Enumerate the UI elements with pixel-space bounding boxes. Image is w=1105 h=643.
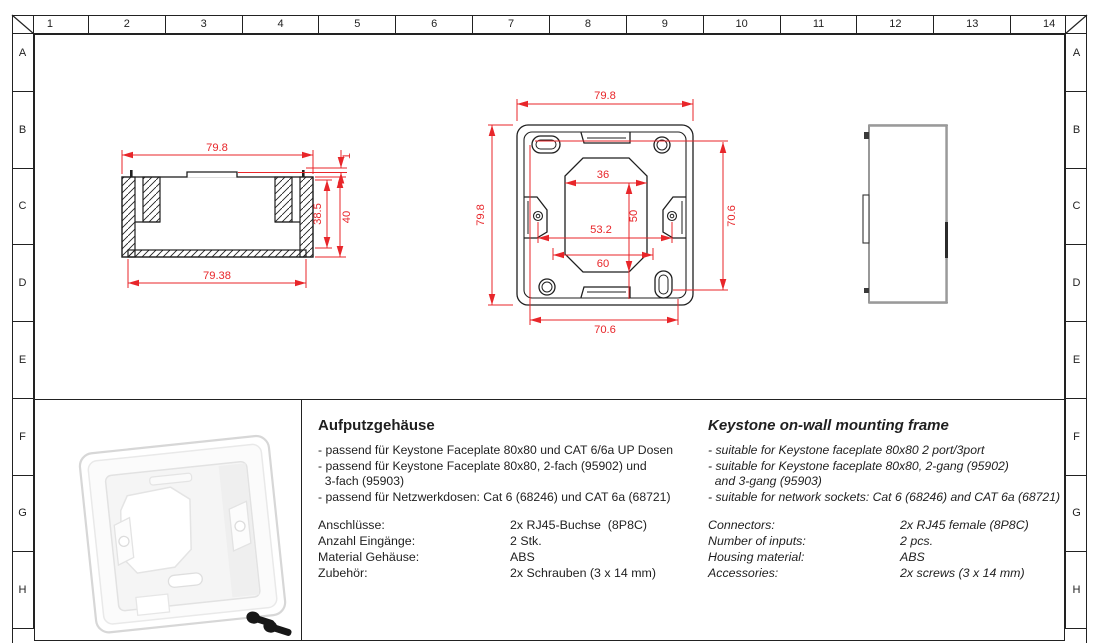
tab-top	[864, 132, 869, 139]
product-title-de: Aufputzgehäuse	[318, 417, 696, 434]
spec-row: Anzahl Eingänge:2 Stk.	[318, 533, 696, 549]
right-pin	[302, 170, 305, 178]
screw-mount-right	[663, 197, 686, 238]
spec-row: Connectors:2x RJ45 female (8P8C)	[708, 517, 1070, 533]
grid-row-label: E	[1065, 322, 1087, 399]
grid-row-label: B	[1065, 92, 1087, 169]
feature-item: - suitable for Keystone faceplate 80x80,…	[708, 459, 1070, 475]
photo-text-divider	[301, 399, 302, 641]
dimension-label: 1	[341, 153, 353, 159]
left-pin	[130, 170, 133, 178]
spec-label: Number of inputs:	[708, 533, 900, 549]
tab-middle	[863, 195, 869, 243]
grid-row-label: B	[12, 92, 34, 169]
spec-table-de: Anschlüsse:2x RJ45-Buchse (8P8C) Anzahl …	[318, 517, 696, 581]
feature-item: 3-fach (95903)	[318, 474, 696, 490]
tab-bottom	[864, 288, 869, 293]
grid-row-label: D	[12, 245, 34, 322]
spec-row: Housing material:ABS	[708, 549, 1070, 565]
side-view-body	[122, 170, 313, 257]
spec-label: Anzahl Eingänge:	[318, 533, 510, 549]
photo-bottom-cutout	[136, 594, 170, 615]
spec-table-en: Connectors:2x RJ45 female (8P8C) Number …	[708, 517, 1070, 581]
dimension-label: 40	[341, 211, 353, 223]
hole-bottom-left	[539, 279, 555, 295]
product-photo	[35, 400, 300, 641]
feature-list-de: - passend für Keystone Faceplate 80x80 u…	[318, 443, 696, 505]
spec-value: 2 Stk.	[510, 533, 542, 549]
spec-label: Connectors:	[708, 517, 900, 533]
grid-row-label: F	[12, 399, 34, 476]
screw-mount-left	[524, 197, 547, 238]
dimension-label: 36	[597, 169, 609, 181]
front-view-body	[517, 125, 693, 305]
dimension-label: 70.6	[726, 205, 738, 227]
spec-row: Material Gehäuse:ABS	[318, 549, 696, 565]
profile-view	[855, 115, 965, 310]
spec-label: Accessories:	[708, 565, 900, 581]
dimension-label: 70.6	[594, 324, 616, 336]
feature-item: - passend für Keystone Faceplate 80x80, …	[318, 459, 696, 475]
spec-value: 2x RJ45-Buchse (8P8C)	[510, 517, 647, 533]
dimension-label: 79.8	[475, 204, 487, 226]
spec-label: Housing material:	[708, 549, 900, 565]
grid-row-label: C	[1065, 169, 1087, 246]
info-block-german: Aufputzgehäuse - passend für Keystone Fa…	[318, 417, 696, 581]
grid-row-label: D	[1065, 245, 1087, 322]
dimension-label: 60	[597, 258, 609, 270]
spec-row: Zubehör:2x Schrauben (3 x 14 mm)	[318, 565, 696, 581]
hole-top-right	[654, 137, 670, 153]
top-tab	[187, 172, 237, 178]
spec-label: Material Gehäuse:	[318, 549, 510, 565]
grid-row-label: H	[12, 552, 34, 629]
dimension-label: 50	[628, 210, 640, 222]
dimension-label: 79.8	[206, 142, 228, 154]
grid-row-label: E	[12, 322, 34, 399]
dimension-label: 53.2	[590, 224, 612, 236]
dimension-label: 38.5	[312, 203, 324, 225]
grid-row-label: G	[12, 476, 34, 553]
spec-row: Number of inputs:2 pcs.	[708, 533, 1070, 549]
dimension-label: 79.8	[594, 90, 616, 102]
feature-item: - passend für Keystone Faceplate 80x80 u…	[318, 443, 696, 459]
feature-item: - passend für Netzwerkdosen: Cat 6 (6824…	[318, 490, 696, 506]
spec-value: 2x RJ45 female (8P8C)	[900, 517, 1029, 533]
feature-item: - suitable for Keystone faceplate 80x80 …	[708, 443, 1070, 459]
spec-value: 2x Schrauben (3 x 14 mm)	[510, 565, 656, 581]
product-title-en: Keystone on-wall mounting frame	[708, 417, 1070, 434]
dimension-label: 79.38	[203, 270, 231, 282]
side-section-view: 79.8 1 38.5 40 79.38	[100, 138, 370, 298]
spec-value: 2x screws (3 x 14 mm)	[900, 565, 1025, 581]
spec-row: Accessories:2x screws (3 x 14 mm)	[708, 565, 1070, 581]
info-block-english: Keystone on-wall mounting frame - suitab…	[708, 417, 1070, 581]
ruler-left: A B C D E F G H	[12, 15, 34, 629]
spec-value: ABS	[510, 549, 535, 565]
feature-item: and 3-gang (95903)	[708, 474, 1070, 490]
feature-item: - suitable for network sockets: Cat 6 (6…	[708, 490, 1070, 506]
grid-row-label: C	[12, 169, 34, 246]
drawing-sheet: 1 2 3 4 5 6 7 8 9 10 11 12 13 14 A B C D…	[0, 0, 1105, 643]
feature-list-en: - suitable for Keystone faceplate 80x80 …	[708, 443, 1070, 505]
spec-row: Anschlüsse:2x RJ45-Buchse (8P8C)	[318, 517, 696, 533]
spec-value: ABS	[900, 549, 925, 565]
spec-value: 2 pcs.	[900, 533, 933, 549]
spec-label: Anschlüsse:	[318, 517, 510, 533]
front-view: 79.8 79.8 70.6 70.6 36 50 53.2 60	[455, 85, 755, 355]
frame-corner-diagonals	[0, 0, 1105, 60]
spec-label: Zubehör:	[318, 565, 510, 581]
